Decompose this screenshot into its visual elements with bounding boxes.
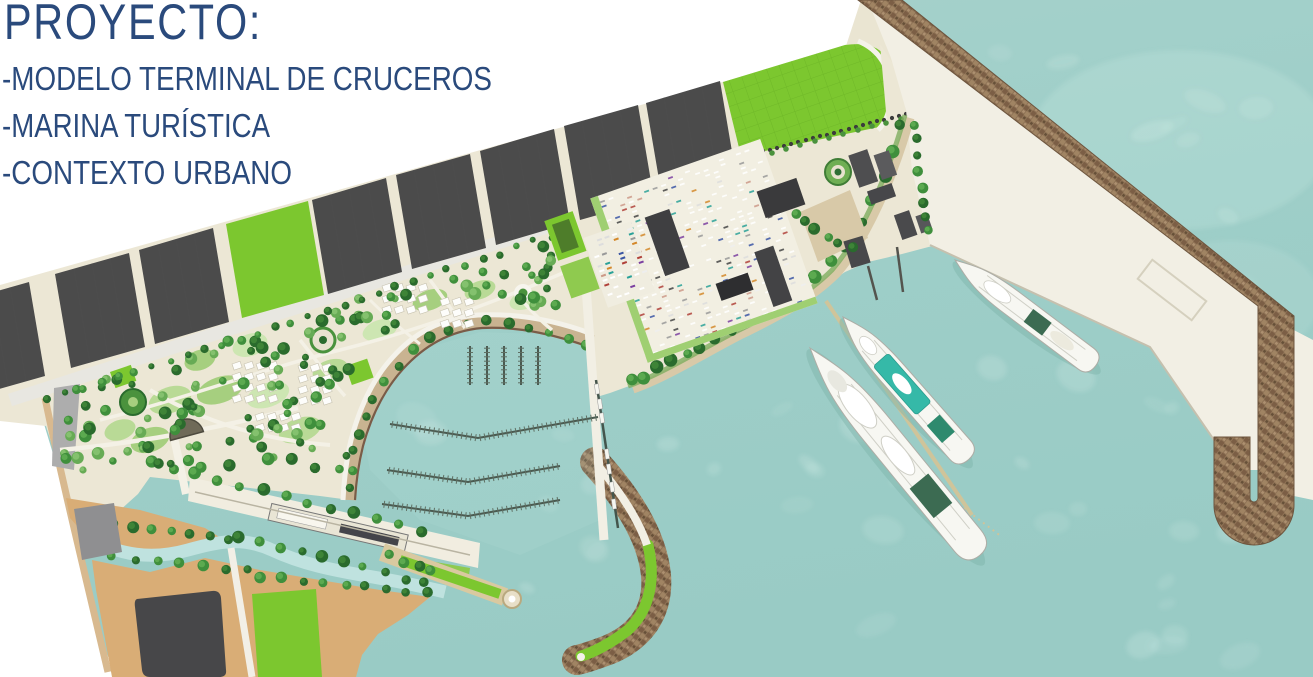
svg-text:PROYECTO:: PROYECTO: (4, 0, 262, 50)
svg-text:-MODELO TERMINAL DE CRUCEROS: -MODELO TERMINAL DE CRUCEROS (2, 60, 492, 97)
svg-text:-CONTEXTO URBANO: -CONTEXTO URBANO (2, 154, 292, 191)
svg-text:-MARINA TURÍSTICA: -MARINA TURÍSTICA (2, 107, 270, 144)
